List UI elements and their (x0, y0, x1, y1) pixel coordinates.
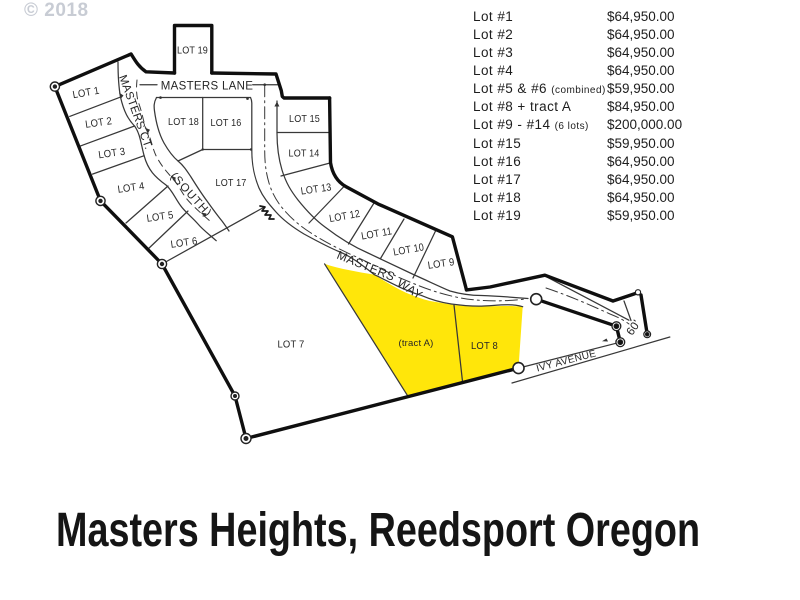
svg-text:LOT 18: LOT 18 (168, 116, 199, 128)
svg-text:LOT 10: LOT 10 (392, 241, 425, 258)
svg-text:LOT 5: LOT 5 (146, 209, 174, 225)
svg-text:LOT 19: LOT 19 (177, 45, 208, 57)
svg-text:LOT 9: LOT 9 (427, 256, 455, 272)
svg-text:LOT 4: LOT 4 (117, 180, 145, 196)
svg-text:LOT 12: LOT 12 (328, 208, 361, 225)
svg-text:LOT 1: LOT 1 (72, 85, 101, 102)
svg-text:LOT 16: LOT 16 (211, 117, 242, 129)
svg-text:LOT 11: LOT 11 (360, 225, 393, 242)
svg-text:LOT 17: LOT 17 (216, 177, 247, 189)
svg-text:IVY AVENUE: IVY AVENUE (535, 348, 597, 374)
svg-text:LOT 8: LOT 8 (471, 340, 498, 352)
svg-text:LOT 7: LOT 7 (278, 339, 305, 351)
svg-text:LOT 14: LOT 14 (289, 148, 320, 160)
svg-text:MASTERS LANE: MASTERS LANE (161, 81, 253, 93)
svg-text:LOT 2: LOT 2 (84, 115, 112, 131)
svg-text:LOT 3: LOT 3 (98, 146, 126, 162)
svg-text:(tract A): (tract A) (398, 338, 433, 349)
svg-text:LOT 6: LOT 6 (170, 235, 198, 251)
svg-text:LOT 13: LOT 13 (300, 181, 332, 197)
svg-text:60': 60' (625, 318, 644, 338)
svg-text:LOT 15: LOT 15 (289, 113, 320, 125)
